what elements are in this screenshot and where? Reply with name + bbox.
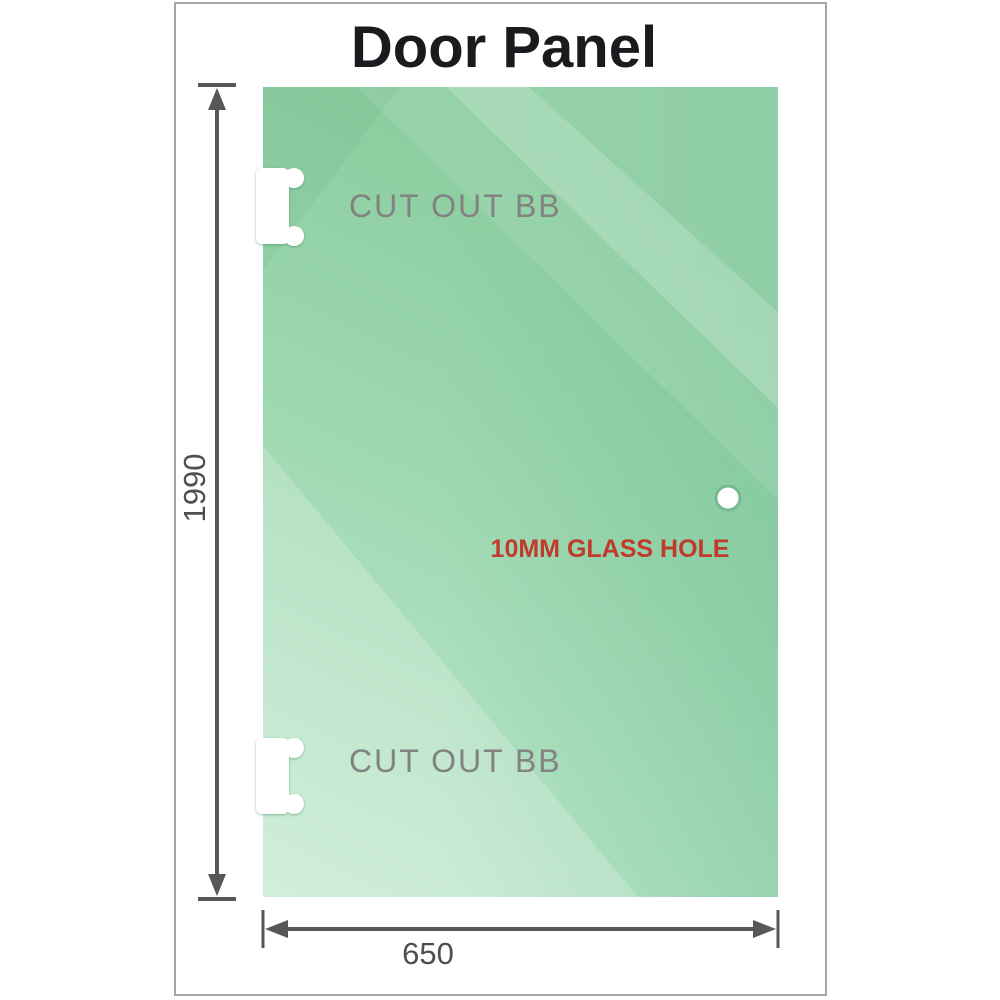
cutout-bottom-label: CUT OUT BB <box>349 744 562 778</box>
glass-hole <box>716 486 740 510</box>
diagram-graphics <box>0 0 1000 1000</box>
door-panel-diagram: Door Panel <box>0 0 1000 1000</box>
glass-hole-label: 10MM GLASS HOLE <box>491 535 730 563</box>
cutout-top-label: CUT OUT BB <box>349 189 562 223</box>
width-dimension-value: 650 <box>402 936 454 972</box>
height-dimension-value: 1990 <box>177 454 213 523</box>
width-dimension-arrow <box>263 910 778 948</box>
